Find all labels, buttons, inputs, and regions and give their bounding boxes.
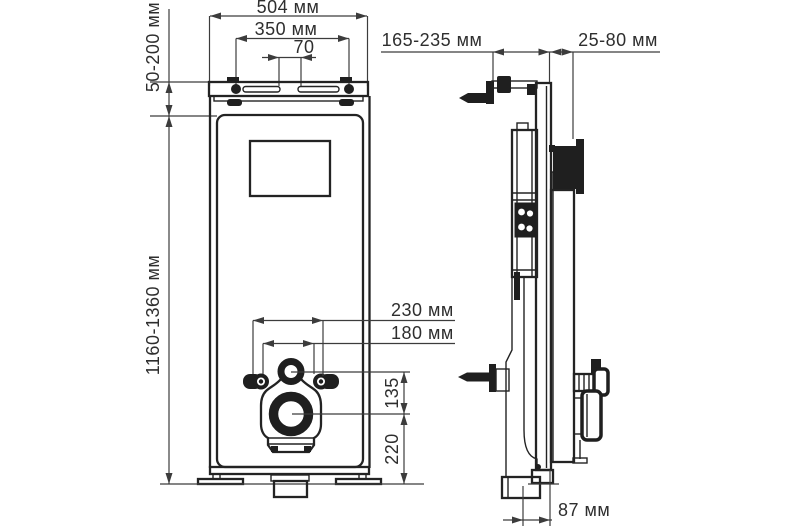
floor-to-outlet-label: 220 bbox=[382, 433, 402, 465]
wall-bracket-top bbox=[459, 76, 537, 104]
technical-drawing-canvas: 504 мм 350 мм 70 bbox=[0, 0, 810, 528]
rail-tab-left bbox=[227, 77, 239, 82]
rail-bolt-right bbox=[344, 84, 354, 94]
installation-frame-drawing: 504 мм 350 мм 70 bbox=[0, 0, 810, 528]
rail-clip-left bbox=[227, 99, 242, 106]
fixing-outer-label: 230 мм bbox=[391, 300, 454, 320]
frame-height-label: 1160-1360 мм bbox=[143, 255, 163, 376]
hanger-rail bbox=[209, 77, 368, 106]
hanger-spacing-label: 350 мм bbox=[255, 19, 318, 39]
outlet-offset-label: 87 мм bbox=[558, 500, 610, 520]
rail-slot-right bbox=[298, 87, 339, 93]
dim-left-vertical: 50-200 мм 1160-1360 мм bbox=[143, 2, 217, 484]
drain-fitting bbox=[243, 362, 339, 453]
overall-width-label: 504 мм bbox=[257, 0, 320, 17]
front-view: 504 мм 350 мм 70 bbox=[143, 0, 455, 497]
wall-bracket-range-label: 165-235 мм bbox=[382, 30, 483, 50]
slot-gap-label: 70 bbox=[293, 37, 314, 57]
front-clearance-label: 25-80 мм bbox=[578, 30, 658, 50]
rail-bolt-left bbox=[231, 84, 241, 94]
dim-slot-gap: 70 bbox=[262, 37, 316, 86]
outlet-flange-side bbox=[573, 391, 601, 463]
wall-anchor-mid bbox=[458, 364, 509, 392]
front-column bbox=[551, 190, 574, 462]
foot-plate-right bbox=[336, 479, 381, 484]
dim-overall-width: 504 мм bbox=[210, 0, 368, 86]
flush-plate-block bbox=[549, 139, 584, 194]
rail-slot-left bbox=[243, 87, 280, 93]
bottom-outlet-front bbox=[271, 475, 309, 497]
flush-plate-window bbox=[250, 141, 330, 196]
rail-clip-right bbox=[339, 99, 354, 106]
anchor-bolt-top bbox=[459, 93, 487, 103]
bottom-crossbar bbox=[210, 467, 369, 474]
top-rail-offset-label: 50-200 мм bbox=[143, 2, 163, 92]
valve-label bbox=[515, 203, 536, 237]
fixing-inner-label: 180 мм bbox=[391, 323, 454, 343]
foot-plate-left bbox=[198, 479, 243, 484]
rail-tab-right bbox=[340, 77, 352, 82]
anchor-bolt-mid bbox=[458, 373, 490, 382]
cistern bbox=[512, 123, 537, 277]
side-view: 165-235 мм 25-80 мм bbox=[381, 30, 660, 526]
fixings-to-outlet-label: 135 bbox=[382, 377, 402, 409]
